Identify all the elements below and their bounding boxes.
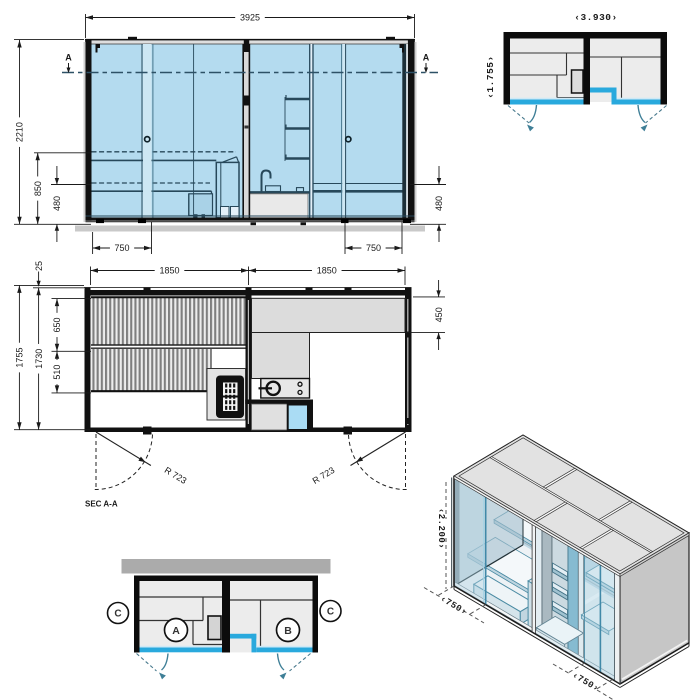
svg-text:480: 480 (52, 196, 62, 211)
svg-text:C: C (327, 607, 334, 618)
svg-text:750: 750 (366, 243, 381, 253)
svg-text:C: C (114, 609, 121, 620)
svg-text:2210: 2210 (15, 122, 25, 142)
svg-text:1755: 1755 (15, 348, 25, 368)
svg-text:3925: 3925 (240, 13, 260, 23)
svg-text:‹2.200›: ‹2.200› (436, 508, 446, 549)
svg-text:25: 25 (34, 261, 44, 271)
svg-text:‹1.755›: ‹1.755› (485, 55, 496, 98)
svg-text:510: 510 (52, 365, 62, 380)
svg-text:1730: 1730 (34, 349, 44, 369)
svg-text:‹3.930›: ‹3.930› (574, 12, 617, 23)
svg-text:850: 850 (33, 181, 43, 196)
svg-text:450: 450 (434, 307, 444, 322)
svg-text:A: A (65, 53, 72, 63)
svg-text:SEC A-A: SEC A-A (85, 500, 118, 509)
svg-text:A: A (423, 53, 430, 63)
svg-text:750: 750 (115, 243, 130, 253)
svg-text:B: B (284, 625, 292, 637)
svg-text:480: 480 (434, 196, 444, 211)
svg-text:A: A (172, 625, 180, 637)
svg-text:650: 650 (52, 317, 62, 332)
svg-text:1850: 1850 (159, 266, 179, 276)
svg-text:1850: 1850 (317, 266, 337, 276)
